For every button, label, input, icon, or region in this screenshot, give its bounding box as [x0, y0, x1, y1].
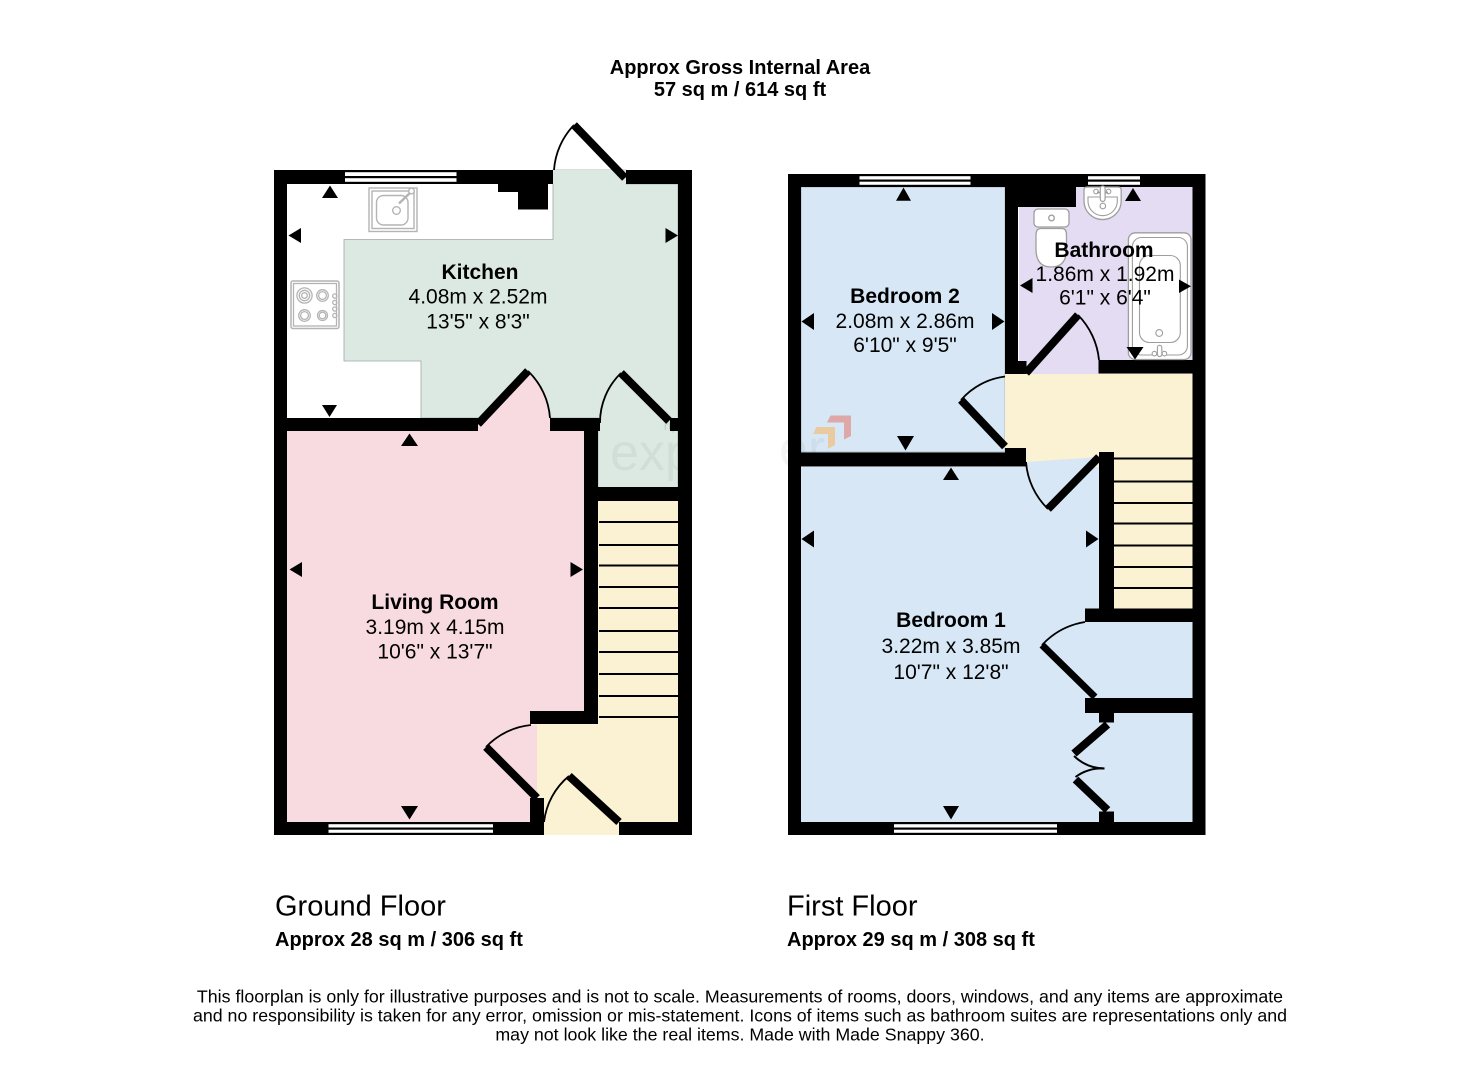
svg-text:Kitchen: Kitchen [441, 261, 518, 284]
svg-text:Bathroom: Bathroom [1054, 239, 1153, 262]
svg-text:2.08m x 2.86m: 2.08m x 2.86m [836, 310, 975, 333]
svg-text:13'5" x 8'3": 13'5" x 8'3" [426, 311, 530, 334]
svg-text:may not look like the real ite: may not look like the real items. Made w… [495, 1025, 984, 1045]
svg-text:4.08m x 2.52m: 4.08m x 2.52m [409, 286, 548, 309]
svg-text:and no responsibility is taken: and no responsibility is taken for any e… [193, 1006, 1287, 1026]
svg-text:3.19m x 4.15m: 3.19m x 4.15m [366, 616, 505, 639]
svg-text:10'6" x 13'7": 10'6" x 13'7" [377, 641, 492, 664]
svg-text:Bedroom 2: Bedroom 2 [850, 285, 960, 308]
svg-text:1.86m x 1.92m: 1.86m x 1.92m [1036, 263, 1175, 286]
svg-text:57 sq m / 614 sq ft: 57 sq m / 614 sq ft [654, 79, 827, 101]
svg-text:10'7" x 12'8": 10'7" x 12'8" [893, 661, 1008, 684]
svg-text:Approx 29 sq m / 308 sq ft: Approx 29 sq m / 308 sq ft [787, 929, 1035, 951]
svg-text:6'1" x 6'4": 6'1" x 6'4" [1059, 287, 1151, 310]
svg-text:Ground Floor: Ground Floor [275, 891, 446, 923]
svg-text:rty: rty [664, 419, 677, 433]
svg-text:This floorplan is only for ill: This floorplan is only for illustrative … [197, 987, 1283, 1007]
svg-text:3.22m x 3.85m: 3.22m x 3.85m [882, 635, 1021, 658]
svg-text:First Floor: First Floor [787, 891, 918, 923]
svg-text:Living Room: Living Room [371, 591, 498, 614]
svg-text:exp: exp [610, 424, 694, 482]
svg-text:Bedroom 1: Bedroom 1 [896, 609, 1006, 632]
svg-text:6'10" x 9'5": 6'10" x 9'5" [853, 334, 957, 357]
svg-text:Approx 28 sq m / 306 sq ft: Approx 28 sq m / 306 sq ft [275, 929, 523, 951]
svg-text:Approx Gross Internal Area: Approx Gross Internal Area [610, 57, 871, 79]
